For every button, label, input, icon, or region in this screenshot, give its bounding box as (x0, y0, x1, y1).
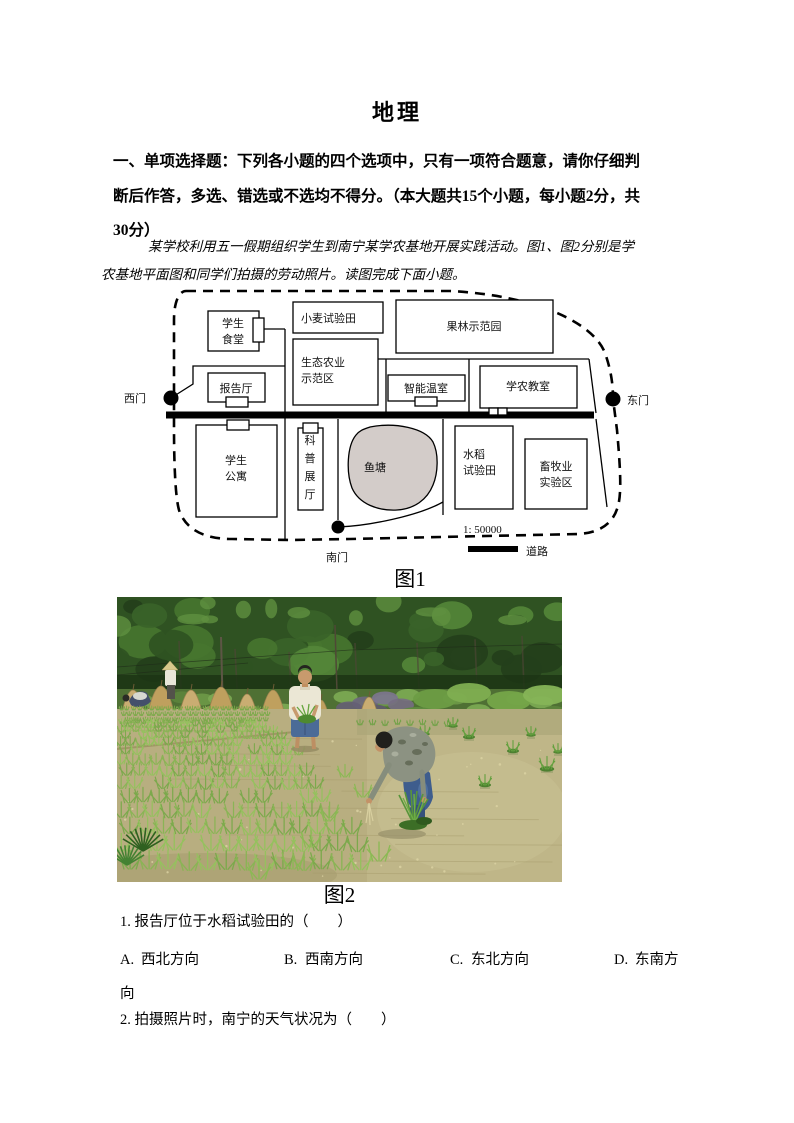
question-2: 2. 拍摄照片时，南宁的天气状况为（ ） (120, 1010, 740, 1030)
question-2-number: 2. (120, 1012, 131, 1028)
canteen-door (253, 318, 264, 342)
lecture-hall-door (226, 397, 248, 407)
label-greenhouse: 智能温室 (404, 381, 448, 395)
figure1-map: 鱼塘 学生食堂 小麦试验田 果林示范园 生态农业示范区 (100, 278, 660, 583)
figure1-caption: 图1 (100, 563, 720, 593)
paddy-water (117, 709, 562, 882)
dorm-door (227, 420, 249, 430)
building-eco-agri (293, 339, 378, 405)
option-a: A.西北方向 (120, 952, 199, 968)
forest-background (117, 597, 562, 701)
east-gate-dot (606, 392, 621, 407)
rice-transplanting-photo (117, 597, 562, 882)
option-gap (363, 963, 450, 964)
option-d-text: 东南方向 (120, 952, 679, 1002)
south-gate-label: 南门 (326, 550, 348, 564)
question-2-stem: 拍摄照片时，南宁的天气状况为（ ） (135, 1012, 396, 1028)
question-1-stem: 报告厅位于水稻试验田的（ ） (135, 914, 353, 930)
label-wheat-field: 小麦试验田 (301, 311, 356, 325)
option-b-text: 西南方向 (305, 952, 363, 968)
legend-road-label: 道路 (526, 544, 548, 558)
option-gap (529, 963, 614, 964)
figure2-photo (117, 597, 562, 882)
farm-base-map: 鱼塘 学生食堂 小麦试验田 果林示范园 生态农业示范区 (100, 278, 660, 578)
building-livestock (525, 439, 587, 509)
pond-label: 鱼塘 (364, 460, 386, 474)
legend-road-swatch (468, 546, 518, 552)
question-1-options: A.西北方向B.西南方向C.东北方向D.东南方向 (120, 944, 680, 1011)
page-title: 地理 (0, 95, 794, 127)
classroom-door-right (498, 408, 507, 415)
fish-pond: 鱼塘 (348, 425, 437, 510)
option-b: B.西南方向 (284, 952, 363, 968)
label-lecture-hall: 报告厅 (220, 381, 253, 395)
exam-page: 地理 一、单项选择题：下列各小题的四个选项中，只有一项符合题意，请你仔细判断后作… (0, 0, 794, 1123)
option-a-text: 西北方向 (141, 952, 199, 968)
figure2-caption: 图2 (117, 879, 562, 909)
west-gate-dot (164, 391, 179, 406)
classroom-door-left (489, 408, 498, 415)
question-1: 1. 报告厅位于水稻试验田的（ ） (120, 912, 740, 932)
option-c: C.东北方向 (450, 952, 529, 968)
option-d-label: D. (614, 944, 635, 978)
west-gate-label: 西门 (124, 391, 146, 405)
east-gate-label: 东门 (627, 393, 649, 407)
south-gate-dot (332, 521, 345, 534)
option-b-label: B. (284, 944, 305, 978)
option-gap (199, 963, 284, 964)
label-orchard: 果林示范园 (447, 319, 502, 333)
option-c-text: 东北方向 (471, 952, 529, 968)
label-farm-classroom: 学农教室 (506, 379, 550, 393)
map-scale-text: 1: 50000 (463, 524, 502, 536)
option-c-label: C. (450, 944, 471, 978)
option-d: D.东南方向 (120, 952, 679, 1002)
science-hall-door (303, 423, 318, 433)
greenhouse-door (415, 397, 437, 406)
option-a-label: A. (120, 944, 141, 978)
question-1-number: 1. (120, 914, 131, 930)
